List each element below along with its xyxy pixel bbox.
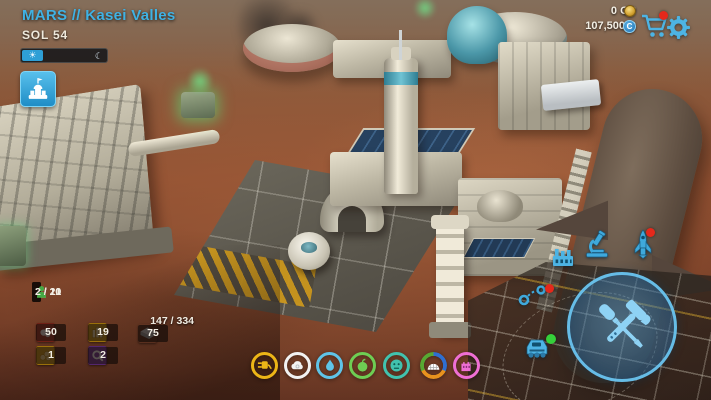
gold-coin-icon [624,5,636,17]
apple-icon [355,358,370,373]
gear-icon [666,15,691,40]
status-ring-food[interactable] [349,352,376,379]
status-ring-colony[interactable] [420,352,447,379]
blue-c-coin-icon: C [623,20,636,33]
dome-icon [426,358,441,373]
rover-status-dot [546,334,556,344]
location-title: MARS // Kasei Valles [22,7,176,24]
housing-building-icon [459,358,474,373]
oxygen-cloud-icon [290,358,305,373]
sun-icon: ☀ [28,51,36,60]
status-ring-oxygen[interactable] [284,352,311,379]
colony-building-icon [26,77,50,101]
status-ring-comfort[interactable] [383,352,410,379]
day-progress-segment: ☀ [22,50,43,61]
status-ring-water[interactable] [316,352,343,379]
industry-marker-button[interactable] [551,247,575,268]
game-screen: MARS // Kasei Valles SOL 54 ☀ ☾ 0 GP 107… [0,0,711,400]
resource-value: 75 [138,325,168,342]
water-drop-icon [323,358,337,373]
moon-icon: ☾ [95,50,103,63]
resource-value: 50 [36,324,66,341]
route-notification-dot [545,284,554,293]
colony-overview-button[interactable] [20,71,56,107]
resource-value: 19 [88,324,118,341]
day-night-progressbar: ☀ ☾ [20,48,108,63]
microscope-icon [584,230,610,258]
colonist-count: 2 / 10 [35,286,61,298]
status-ring-housing[interactable] [453,352,480,379]
crossed-hammer-screwdriver-icon [589,294,655,360]
build-menu-button[interactable] [567,272,677,382]
rocket-notification-dot [646,228,655,237]
resource-value: 2 [88,347,118,364]
colonist-badge-green[interactable]: 2 / 10 [32,282,41,302]
neutral-face-icon [389,358,404,373]
factory-icon [551,247,575,268]
settings-button[interactable] [666,15,691,40]
research-button[interactable] [584,230,610,258]
power-plug-icon [257,358,272,373]
resource-value: 1 [36,347,66,364]
status-ring-power[interactable] [251,352,278,379]
sol-counter: SOL 54 [22,28,68,42]
